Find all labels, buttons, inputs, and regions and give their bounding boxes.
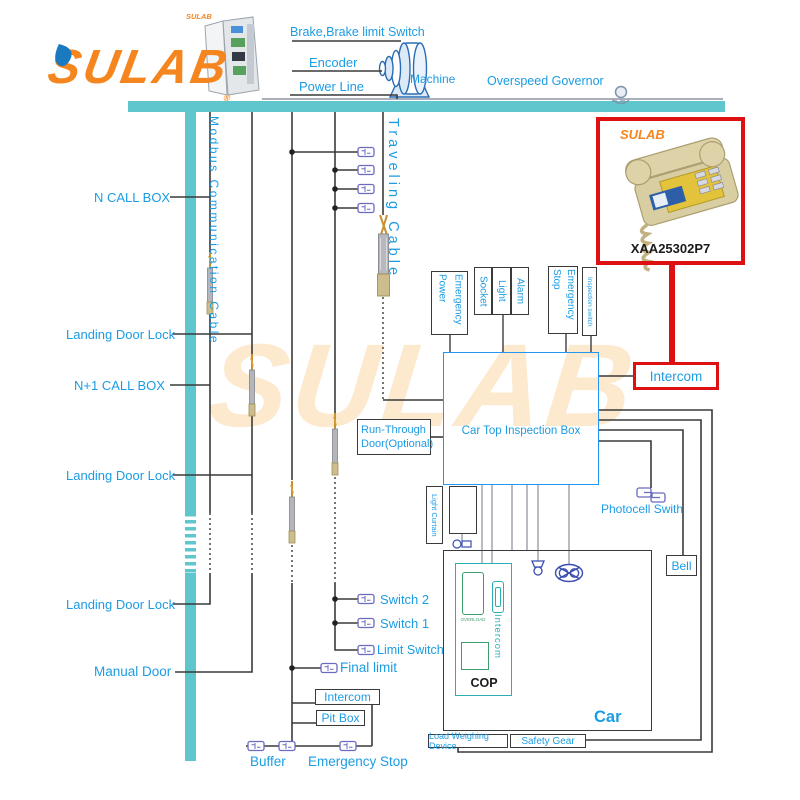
switch-1-label: Switch 1 [380, 616, 429, 631]
modbus-cable-label: Modbus Communication Cable [207, 116, 221, 356]
n-call-box-label: N CALL BOX [94, 190, 170, 205]
socket-cell: Socket [474, 267, 492, 315]
shaft-rail-upper [185, 101, 196, 513]
load-weighing-device-box: Load Weighing Device [428, 734, 508, 748]
junction-dots [289, 149, 338, 671]
car-top-inspection-box-label: Car Top Inspection Box [462, 425, 581, 437]
elevator-wiring-diagram: SULAB [0, 0, 800, 800]
contact-symbols [207, 252, 338, 543]
emergency-stop-box: Emergency Stop [548, 266, 578, 334]
limit-switch-label: Limit Switch [377, 643, 444, 657]
brake-label: Brake,Brake limit Switch [290, 25, 425, 39]
photocell-label: Photocell Swith [601, 502, 683, 516]
light-curtain-box: Light Curtain [426, 486, 443, 544]
intercom-red-box: Intercom [633, 362, 719, 390]
cop-label: COP [458, 676, 510, 690]
n1-call-box-label: N+1 CALL BOX [74, 378, 165, 393]
switch-2-label: Switch 2 [380, 592, 429, 607]
car-label: Car [594, 708, 622, 727]
buffer-label: Buffer [250, 754, 286, 769]
photocell-icon [637, 488, 665, 502]
overload-label: OVERLOAD [459, 617, 487, 622]
landing-door-lock-label: Landing Door Lock [66, 468, 175, 483]
pit-box: Pit Box [316, 710, 365, 726]
bell-box: Bell [666, 555, 697, 576]
cop-intercom-label: Intercom [492, 614, 503, 662]
alarm-cell: Alarm [511, 267, 529, 315]
inspection-switch-box: Inspection switch [582, 267, 597, 336]
socket-light-alarm-box: Socket Light Alarm [474, 267, 529, 315]
machine-icon [380, 43, 430, 97]
emergency-power-box: Emergency Power [431, 271, 468, 335]
run-through-door-box: Run-Through Door(Optional) [357, 419, 431, 455]
machine-label: Machine [410, 72, 455, 86]
cop-display [462, 572, 484, 615]
logo-droplet-icon [50, 42, 81, 72]
traveling-cable-label: Traveling Cable [385, 118, 401, 338]
product-model-label: XAA25302P7 [600, 241, 741, 256]
product-brand-label: SULAB [620, 127, 665, 142]
door-operator-box [449, 486, 477, 534]
intercom-pit-box: Intercom [315, 689, 380, 705]
safety-gear-box: Safety Gear [510, 734, 586, 748]
cop-keypad [461, 642, 489, 670]
sulab-logo: SULAB® [42, 40, 240, 103]
power-line-label: Power Line [299, 79, 364, 94]
overspeed-governor-icon [612, 87, 629, 104]
cop-intercom-slot-inner [495, 587, 501, 607]
overspeed-governor-label: Overspeed Governor [487, 74, 604, 88]
manual-door-label: Manual Door [94, 664, 171, 679]
cabinet-brand-label: SULAB [186, 12, 212, 21]
landing-door-lock-label: Landing Door Lock [66, 327, 175, 342]
encoder-label: Encoder [309, 55, 357, 70]
landing-door-lock-label: Landing Door Lock [66, 597, 175, 612]
shaft-rail-lower [185, 573, 196, 761]
car-top-inspection-box: Car Top Inspection Box [443, 352, 599, 485]
final-limit-label: Final limit [340, 660, 397, 675]
door-motor-icon [453, 540, 471, 548]
light-cell: Light [492, 267, 511, 315]
emergency-stop-bottom-label: Emergency Stop [308, 754, 408, 769]
intercom-product-photo-frame: SULAB XAA25302P7 [596, 117, 745, 265]
